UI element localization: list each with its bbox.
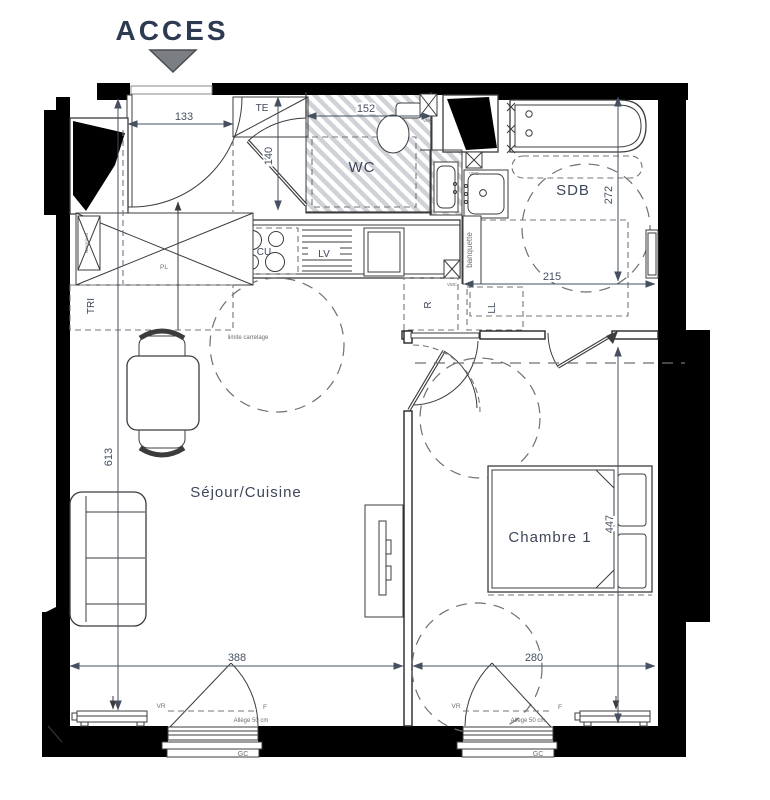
label-gc-living: GC — [238, 751, 249, 758]
label-fridge: R — [423, 301, 434, 308]
hall-turning-circle — [420, 358, 540, 478]
pl-closet — [76, 213, 253, 285]
technical-shaft-left — [70, 118, 128, 214]
access-title: ACCES — [115, 15, 228, 46]
shower-accessibility-zone — [470, 220, 628, 316]
dim-447: 447 — [604, 515, 616, 533]
label-limite-carrelage: limite carrelage — [228, 335, 269, 341]
label-cu: CU — [257, 247, 271, 258]
dim-272: 272 — [603, 186, 615, 204]
dim-388: 388 — [228, 652, 246, 664]
label-vmc-3: VMC — [447, 282, 458, 287]
vmc-box-1 — [420, 94, 437, 116]
sofa — [70, 492, 146, 626]
technical-shaft-top — [443, 95, 498, 152]
tv-unit — [365, 505, 403, 617]
label-f-bedroom: F — [558, 704, 562, 711]
vmc-box-3 — [444, 260, 460, 278]
room-label-sdb: SDB — [556, 182, 590, 199]
label-lv: LV — [318, 249, 330, 260]
label-f-living: F — [263, 704, 267, 711]
dim-280: 280 — [525, 652, 543, 664]
kitchen-turning-circle — [210, 278, 344, 412]
towel-radiator — [646, 230, 658, 278]
dim-133: 133 — [175, 111, 193, 123]
label-tri: TRI — [86, 298, 97, 314]
label-te: TE — [256, 103, 269, 114]
vmc-box-2 — [466, 152, 482, 168]
label-vmc-1: VMC — [423, 118, 434, 123]
room-label-sejour-cuisine: Séjour/Cuisine — [190, 484, 302, 501]
bedroom-radiator — [575, 711, 650, 726]
hall-door-threshold — [411, 333, 479, 338]
te-closet — [233, 97, 308, 137]
dim-152: 152 — [357, 103, 375, 115]
bath-transfer-zone — [512, 156, 642, 178]
label-nourrices: Nourrices — [84, 232, 90, 253]
access-arrow-icon — [150, 50, 196, 72]
dim-140: 140 — [263, 147, 275, 165]
hand-basin — [434, 162, 458, 212]
dining-table — [127, 356, 199, 430]
living-radiator — [72, 711, 147, 726]
bathtub — [507, 100, 646, 153]
wc-door-swing — [248, 118, 306, 141]
washbasin-vanity — [464, 170, 508, 218]
label-pl: PL — [160, 264, 168, 271]
kitchen-sink — [364, 228, 404, 276]
entry-threshold — [131, 86, 212, 94]
floor-plan-drawing: ACCES WC SDB Séjour/Cuisine Chambre 1 TE… — [0, 0, 770, 800]
label-vmc-2: VMC — [469, 171, 480, 176]
label-vr-bedroom: VR — [451, 703, 460, 710]
label-vr-living: VR — [156, 703, 165, 710]
floor-plan-page: ACCES WC SDB Séjour/Cuisine Chambre 1 TE… — [0, 0, 770, 800]
bedroom-window — [457, 663, 557, 757]
label-washing-machine: LL — [487, 302, 498, 314]
bedroom-turning-circle — [412, 603, 542, 733]
label-banquette: banquette — [465, 232, 474, 268]
dim-215: 215 — [543, 271, 561, 283]
dim-613: 613 — [103, 448, 115, 466]
label-allege-living: Allège 50 cm — [234, 718, 269, 724]
label-allege-bedroom: Allège 50 cm — [511, 718, 546, 724]
room-label-chambre1: Chambre 1 — [508, 529, 591, 546]
label-gc-bedroom: GC — [533, 751, 544, 758]
room-label-wc: WC — [349, 159, 376, 176]
sdb-door-swing — [548, 333, 558, 367]
living-window — [162, 663, 262, 757]
